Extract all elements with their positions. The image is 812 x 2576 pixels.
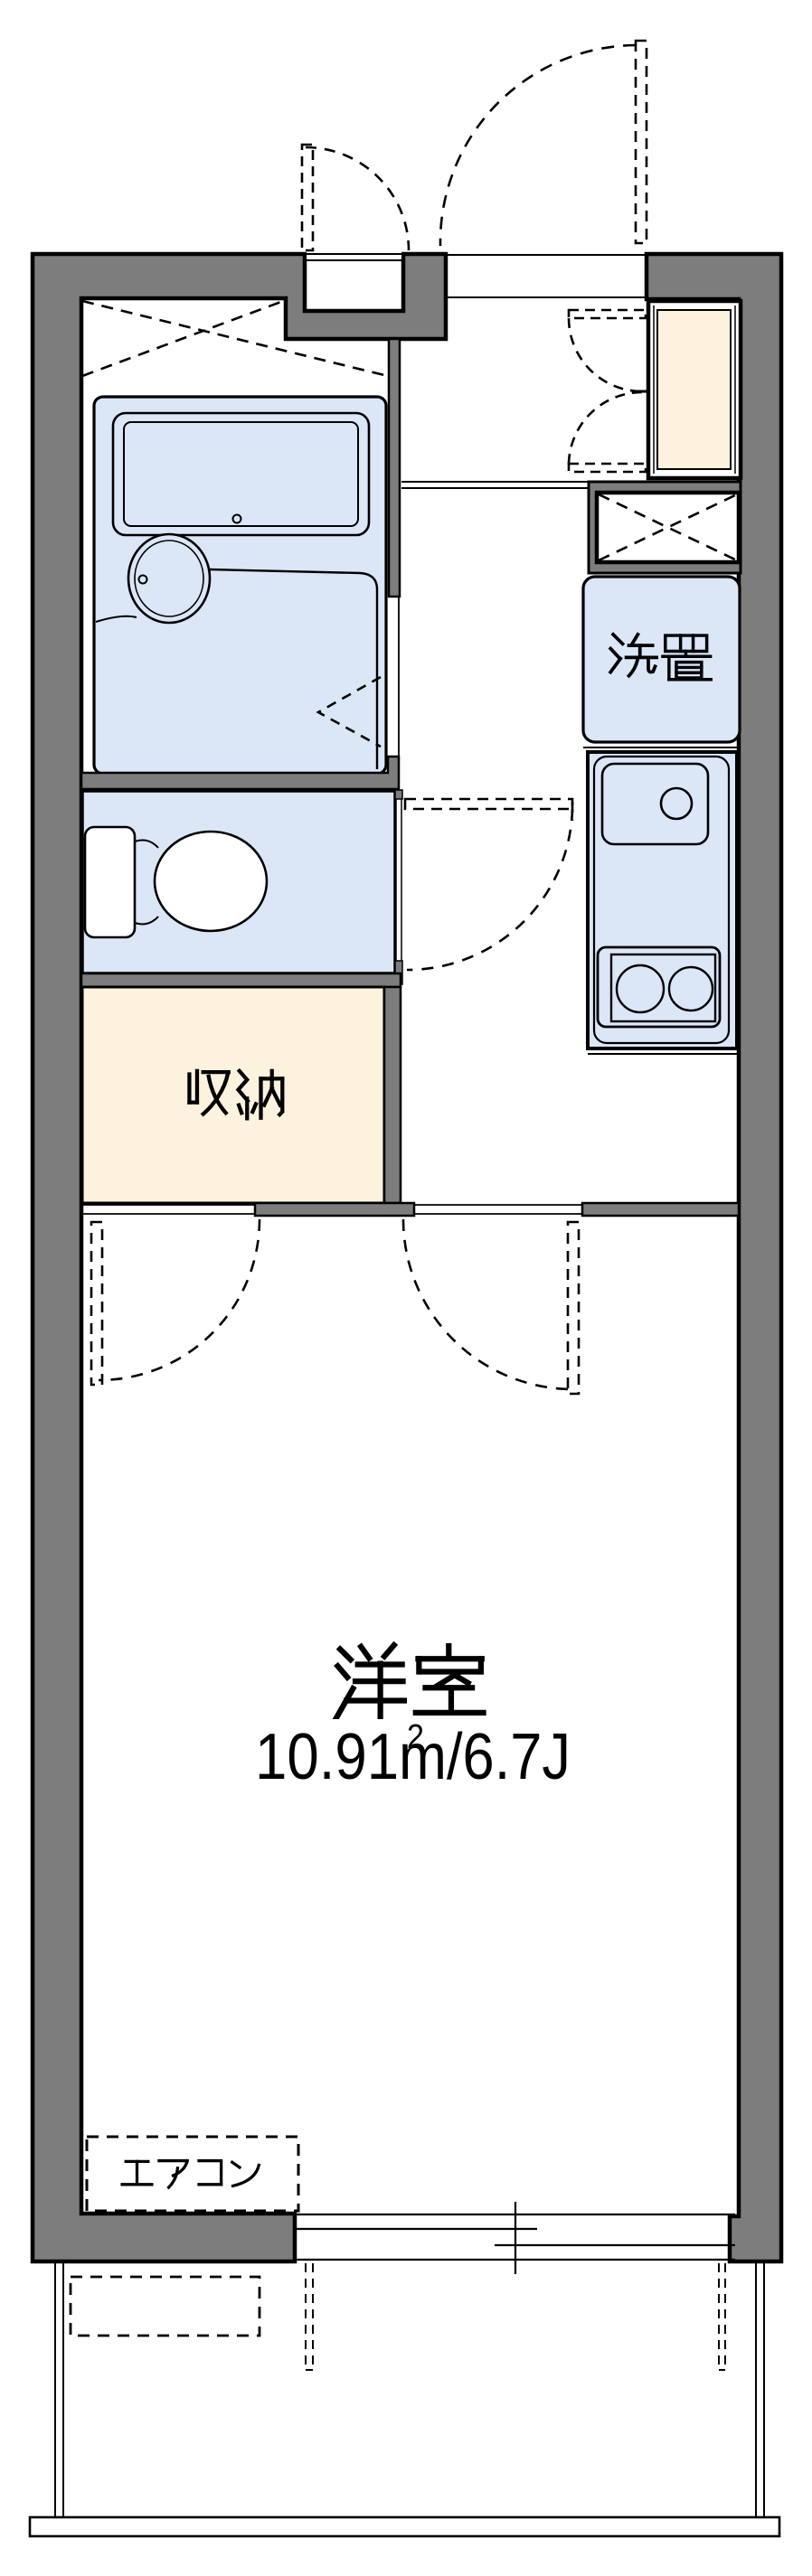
svg-text:/6.7J: /6.7J bbox=[447, 1721, 571, 1793]
svg-text:2: 2 bbox=[407, 1718, 424, 1756]
